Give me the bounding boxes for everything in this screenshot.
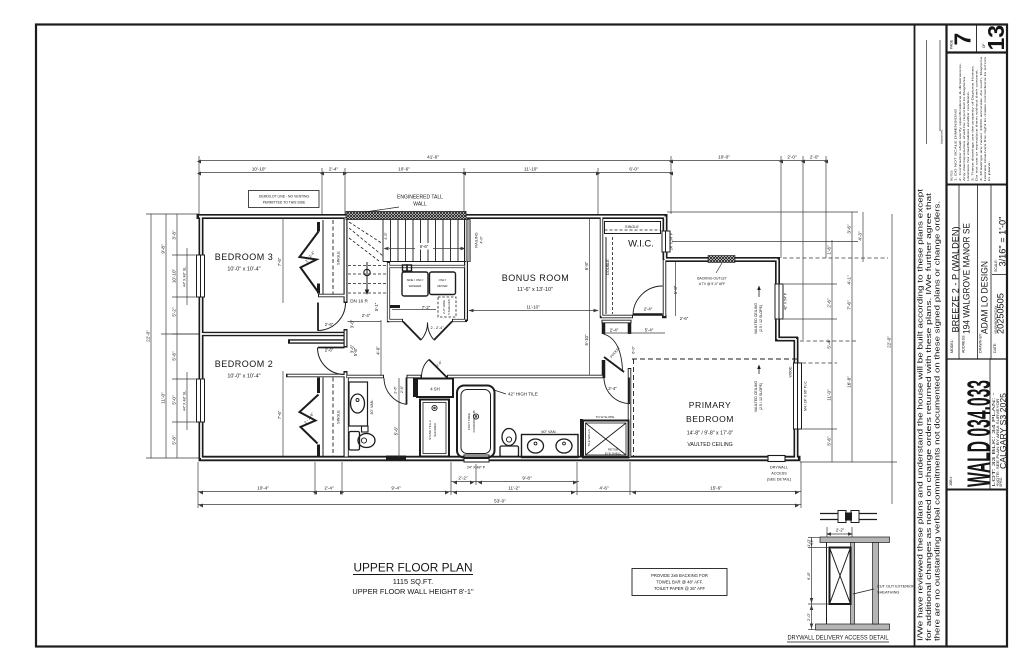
- svg-text:FOOT FREE: FOOT FREE: [467, 413, 471, 430]
- svg-text:PROVIDE 2x6 BACKING FOR: PROVIDE 2x6 BACKING FOR: [651, 573, 708, 578]
- svg-text:3'-6": 3'-6": [350, 344, 355, 353]
- svg-text:41'-6": 41'-6": [427, 155, 439, 160]
- svg-text:(signature): (signature): [940, 130, 944, 144]
- svg-text:42" HIGH TILE: 42" HIGH TILE: [508, 392, 538, 397]
- svg-text:4'-0": 4'-0": [480, 236, 484, 244]
- svg-text:5'-8": 5'-8": [172, 435, 177, 445]
- svg-text:16'-8": 16'-8": [847, 376, 852, 388]
- svg-text:7'-6": 7'-6": [847, 300, 852, 310]
- svg-text:10'-4": 10'-4": [257, 486, 269, 491]
- svg-text:4'-3": 4'-3": [858, 231, 863, 241]
- svg-text:5'-1": 5'-1": [374, 302, 379, 311]
- svg-text:MODEL:: MODEL:: [950, 339, 954, 353]
- svg-text:BONUS ROOM: BONUS ROOM: [502, 273, 570, 283]
- svg-text:10'-0": 10'-0": [718, 155, 730, 160]
- svg-text:3'-6": 3'-6": [350, 319, 355, 328]
- svg-text:in plans.: in plans.: [987, 161, 991, 181]
- svg-text:TILE WALLS: TILE WALLS: [587, 429, 591, 446]
- svg-text:WASHER: WASHER: [409, 284, 422, 288]
- svg-text:UPPER FLOOR PLAN: UPPER FLOOR PLAN: [354, 561, 473, 575]
- svg-text:2'-0" WIDE: 2'-0" WIDE: [442, 300, 446, 314]
- svg-text:4'-6": 4'-6": [376, 346, 381, 355]
- svg-text:11'-10": 11'-10": [526, 305, 539, 310]
- svg-text:DRAWN BY:: DRAWN BY:: [978, 333, 982, 353]
- svg-text:10'-0" x 10'-4": 10'-0" x 10'-4": [227, 267, 260, 273]
- svg-text:4'-6": 4'-6": [599, 486, 609, 491]
- svg-text:4'-1": 4'-1": [847, 275, 852, 285]
- svg-text:13: 13: [983, 25, 1009, 51]
- svg-text:(SEE DETAIL): (SEE DETAIL): [767, 478, 792, 482]
- svg-text:9'-4": 9'-4": [391, 486, 401, 491]
- svg-text:4 SH: 4 SH: [430, 387, 440, 392]
- svg-text:TOWEL BAR @ 48" AFF.: TOWEL BAR @ 48" AFF.: [656, 580, 703, 585]
- svg-text:TO W SLOPE: TO W SLOPE: [596, 415, 615, 419]
- svg-text:24" X 48" P: 24" X 48" P: [467, 466, 486, 470]
- svg-text:DOUBLE: DOUBLE: [606, 259, 610, 275]
- svg-text:PRIMARY: PRIMARY: [689, 400, 732, 410]
- svg-text:5 SHELVES: 5 SHELVES: [447, 299, 451, 315]
- svg-text:6'-10": 6'-10": [584, 334, 589, 345]
- svg-text:9'-8": 9'-8": [522, 476, 532, 481]
- svg-text:DEMO/LOT LINE - NO VENTING: DEMO/LOT LINE - NO VENTING: [259, 195, 310, 199]
- svg-text:2'-0": 2'-0": [806, 612, 811, 621]
- svg-text:ACCESS: ACCESS: [771, 472, 787, 476]
- svg-text:2'-0": 2'-0": [810, 155, 820, 160]
- svg-text:2'-4": 2'-4": [608, 386, 617, 391]
- svg-text:DATE:: DATE:: [993, 343, 997, 353]
- svg-text:44" X 48" SL.: 44" X 48" SL.: [183, 266, 187, 287]
- svg-text:3'-6": 3'-6": [847, 224, 852, 234]
- svg-text:2'-4": 2'-4": [610, 328, 619, 333]
- svg-text:7: 7: [950, 33, 976, 46]
- svg-text:PERMITTED TO THIS SIDE: PERMITTED TO THIS SIDE: [263, 201, 306, 205]
- svg-text:2'-6": 2'-6": [680, 316, 689, 321]
- svg-text:9'-8": 9'-8": [161, 244, 166, 254]
- svg-text:2'-6": 2'-6": [394, 386, 398, 394]
- svg-text:6'-8": 6'-8": [806, 571, 811, 580]
- svg-text:5'-6": 5'-6": [172, 351, 177, 361]
- svg-text:2'-6": 2'-6": [827, 298, 832, 308]
- svg-text:6'-8": 6'-8": [584, 261, 589, 270]
- svg-text:14'-8" / 9'-8" x 17'-0": 14'-8" / 9'-8" x 17'-0": [687, 431, 734, 437]
- svg-text:BEDROOM 2: BEDROOM 2: [215, 359, 274, 369]
- svg-text:5'-0": 5'-0": [172, 395, 177, 405]
- svg-text:5'-6": 5'-6": [827, 436, 832, 446]
- svg-text:BEDROOM: BEDROOM: [686, 414, 734, 424]
- svg-text:5'-2": 5'-2": [172, 307, 177, 317]
- svg-text:10'-0" x 10'-4": 10'-0" x 10'-4": [227, 374, 260, 380]
- svg-text:A TV @ 5'-0" AFF: A TV @ 5'-0" AFF: [699, 282, 726, 286]
- svg-text:2'-2": 2'-2": [458, 476, 468, 481]
- svg-text:ADAM LO DESIGN: ADAM LO DESIGN: [980, 261, 990, 334]
- svg-text:DN 16 R: DN 16 R: [350, 299, 368, 304]
- svg-text:2 - 2'-4": 2 - 2'-4": [430, 326, 444, 330]
- svg-text:DRYER: DRYER: [437, 284, 447, 288]
- svg-text:BEDROOM 3: BEDROOM 3: [215, 252, 274, 262]
- svg-text:RAILING: RAILING: [475, 232, 479, 247]
- svg-text:11'-10": 11'-10": [524, 167, 538, 172]
- svg-text:DRYWALL: DRYWALL: [770, 466, 788, 470]
- svg-text:10'-6": 10'-6": [398, 167, 410, 172]
- svg-text:11'-0": 11'-0": [161, 392, 166, 404]
- svg-text:CUT OUT EXTERIOR: CUT OUT EXTERIOR: [877, 584, 915, 589]
- svg-text:BREEZE 2 - P (WALDEN): BREEZE 2 - P (WALDEN): [950, 227, 960, 333]
- svg-text:(2.5 / 12 SLOPE): (2.5 / 12 SLOPE): [759, 305, 763, 332]
- svg-text:2'-6": 2'-6": [325, 348, 334, 353]
- svg-text:EYE SHELL: EYE SHELL: [605, 452, 622, 456]
- svg-text:SINGLE: SINGLE: [625, 225, 639, 229]
- svg-text:M4 / 24" X 66" P.I.C: M4 / 24" X 66" P.I.C: [804, 381, 808, 411]
- svg-text:5'-6": 5'-6": [394, 426, 399, 435]
- svg-text:11'-6" x 13'-10": 11'-6" x 13'-10": [517, 287, 553, 293]
- svg-text:10'-10": 10'-10": [252, 167, 267, 172]
- svg-text:Homes for clarification and/or: Homes for clarification and/or revision.: [966, 91, 970, 181]
- svg-text:30" VAN.: 30" VAN.: [370, 399, 374, 414]
- svg-text:2'-4": 2'-4": [329, 167, 339, 172]
- svg-text:ENGINEERED TALL: ENGINEERED TALL: [397, 195, 443, 201]
- svg-text:BACKING OUTLET: BACKING OUTLET: [697, 277, 727, 281]
- svg-text:WALL: WALL: [413, 202, 427, 208]
- svg-text:4'-5": 4'-5": [384, 232, 388, 240]
- svg-text:42" X 54" P: 42" X 54" P: [784, 292, 788, 310]
- svg-text:2'-4": 2'-4": [644, 307, 653, 312]
- svg-text:ONLY: ONLY: [439, 278, 447, 282]
- svg-text:JOB #: JOB #: [949, 476, 953, 486]
- svg-text:UPPER FLOOR WALL HEIGHT 8'-1": UPPER FLOOR WALL HEIGHT 8'-1": [352, 587, 474, 596]
- svg-text:SINGLE: SINGLE: [337, 251, 341, 265]
- svg-text:there are no outstanding verba: there are no outstanding verbal commitme…: [933, 201, 942, 641]
- svg-text:11'-0": 11'-0": [827, 389, 832, 401]
- svg-text:SPEC:: SPEC:: [999, 477, 1003, 487]
- svg-text:2'-2": 2'-2": [836, 528, 845, 533]
- svg-text:2'-4": 2'-4": [324, 486, 334, 491]
- svg-text:194 WALGROVE MANOR SE: 194 WALGROVE MANOR SE: [962, 223, 972, 334]
- svg-text:VAULTED CEILING: VAULTED CEILING: [687, 442, 732, 448]
- svg-text:WOOD: WOOD: [789, 366, 793, 377]
- svg-text:TOILET PAPER @ 26" AFF: TOILET PAPER @ 26" AFF: [654, 586, 706, 591]
- svg-text:6'-0": 6'-0": [632, 346, 636, 354]
- svg-text:53'-0": 53'-0": [494, 499, 506, 504]
- svg-text:2'-0": 2'-0": [787, 155, 797, 160]
- svg-text:44" X 48" SL.: 44" X 48" SL.: [183, 390, 187, 411]
- svg-text:1'-0": 1'-0": [806, 538, 811, 547]
- svg-text:3/16" = 1'-0": 3/16" = 1'-0": [997, 217, 1007, 267]
- svg-text:W.I.C.: W.I.C.: [628, 239, 654, 250]
- svg-text:7'-6": 7'-6": [277, 410, 282, 419]
- svg-text:ADDRESS:: ADDRESS:: [962, 335, 966, 353]
- svg-text:SHOWER: SHOWER: [433, 422, 437, 436]
- svg-text:SIDE / ONLY: SIDE / ONLY: [407, 278, 424, 282]
- svg-text:SINGLE: SINGLE: [337, 410, 341, 424]
- svg-text:DRYWALL DELIVERY ACCESS DETAIL: DRYWALL DELIVERY ACCESS DETAIL: [788, 635, 889, 642]
- svg-text:CALGARY S3 2025: CALGARY S3 2025: [999, 392, 1008, 469]
- svg-text:20250505: 20250505: [996, 293, 1006, 334]
- svg-text:3'-8": 3'-8": [172, 230, 177, 240]
- svg-text:SHEATHING: SHEATHING: [877, 590, 899, 595]
- svg-text:VAULTED CEILING: VAULTED CEILING: [754, 303, 758, 335]
- svg-text:5'-4": 5'-4": [645, 328, 654, 333]
- svg-text:6'-6": 6'-6": [420, 244, 429, 249]
- svg-text:1'-6": 1'-6": [827, 245, 832, 255]
- svg-text:2'-6": 2'-6": [400, 385, 404, 393]
- svg-text:7'-6": 7'-6": [277, 257, 282, 266]
- svg-text:1115 SQ.FT.: 1115 SQ.FT.: [393, 577, 433, 586]
- svg-text:22'-0": 22'-0": [146, 330, 151, 342]
- svg-text:1. DO NOT SCALE DIMENSIONS: 1. DO NOT SCALE DIMENSIONS: [954, 109, 958, 181]
- svg-text:10'-10": 10'-10": [172, 269, 177, 284]
- svg-text:Do not use or reproduce them w: Do not use or reproduce them without the…: [975, 69, 979, 181]
- svg-text:VAULTED CEILING: VAULTED CEILING: [754, 381, 758, 413]
- svg-text:5'-4": 5'-4": [827, 339, 832, 349]
- svg-text:STAND TILE A: STAND TILE A: [428, 420, 432, 440]
- svg-text:2'-6": 2'-6": [325, 322, 334, 327]
- svg-text:STANDING TUB: STANDING TUB: [472, 410, 476, 432]
- svg-text:22'-0": 22'-0": [887, 336, 892, 348]
- svg-text:2'-4": 2'-4": [362, 313, 371, 318]
- svg-text:15'-6": 15'-6": [710, 486, 722, 491]
- svg-text:11'-2": 11'-2": [508, 486, 520, 491]
- svg-text:60" VAN.: 60" VAN.: [541, 430, 556, 434]
- svg-text:6'-0": 6'-0": [629, 167, 639, 172]
- svg-text:(2.5 / 12 SLOPE): (2.5 / 12 SLOPE): [759, 383, 763, 410]
